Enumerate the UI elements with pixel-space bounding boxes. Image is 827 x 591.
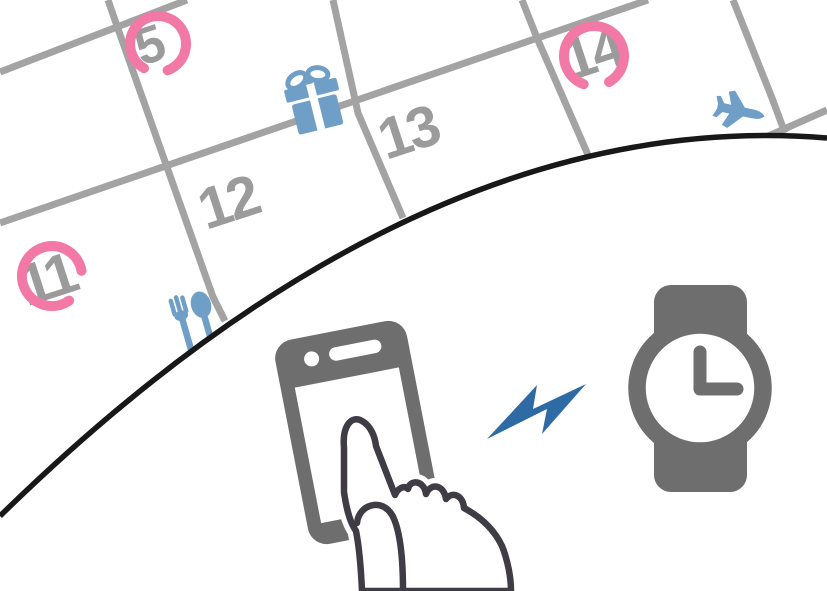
- date-number-12: 12: [190, 162, 266, 242]
- wristwatch-icon: [637, 285, 763, 492]
- illustration-svg: 5 11 12 13 14: [0, 0, 827, 591]
- fork-handle: [182, 318, 192, 353]
- airplane-icon: [711, 87, 769, 135]
- airplane-silhouette: [711, 87, 769, 135]
- illustration-canvas: 5 11 12 13 14: [0, 0, 827, 591]
